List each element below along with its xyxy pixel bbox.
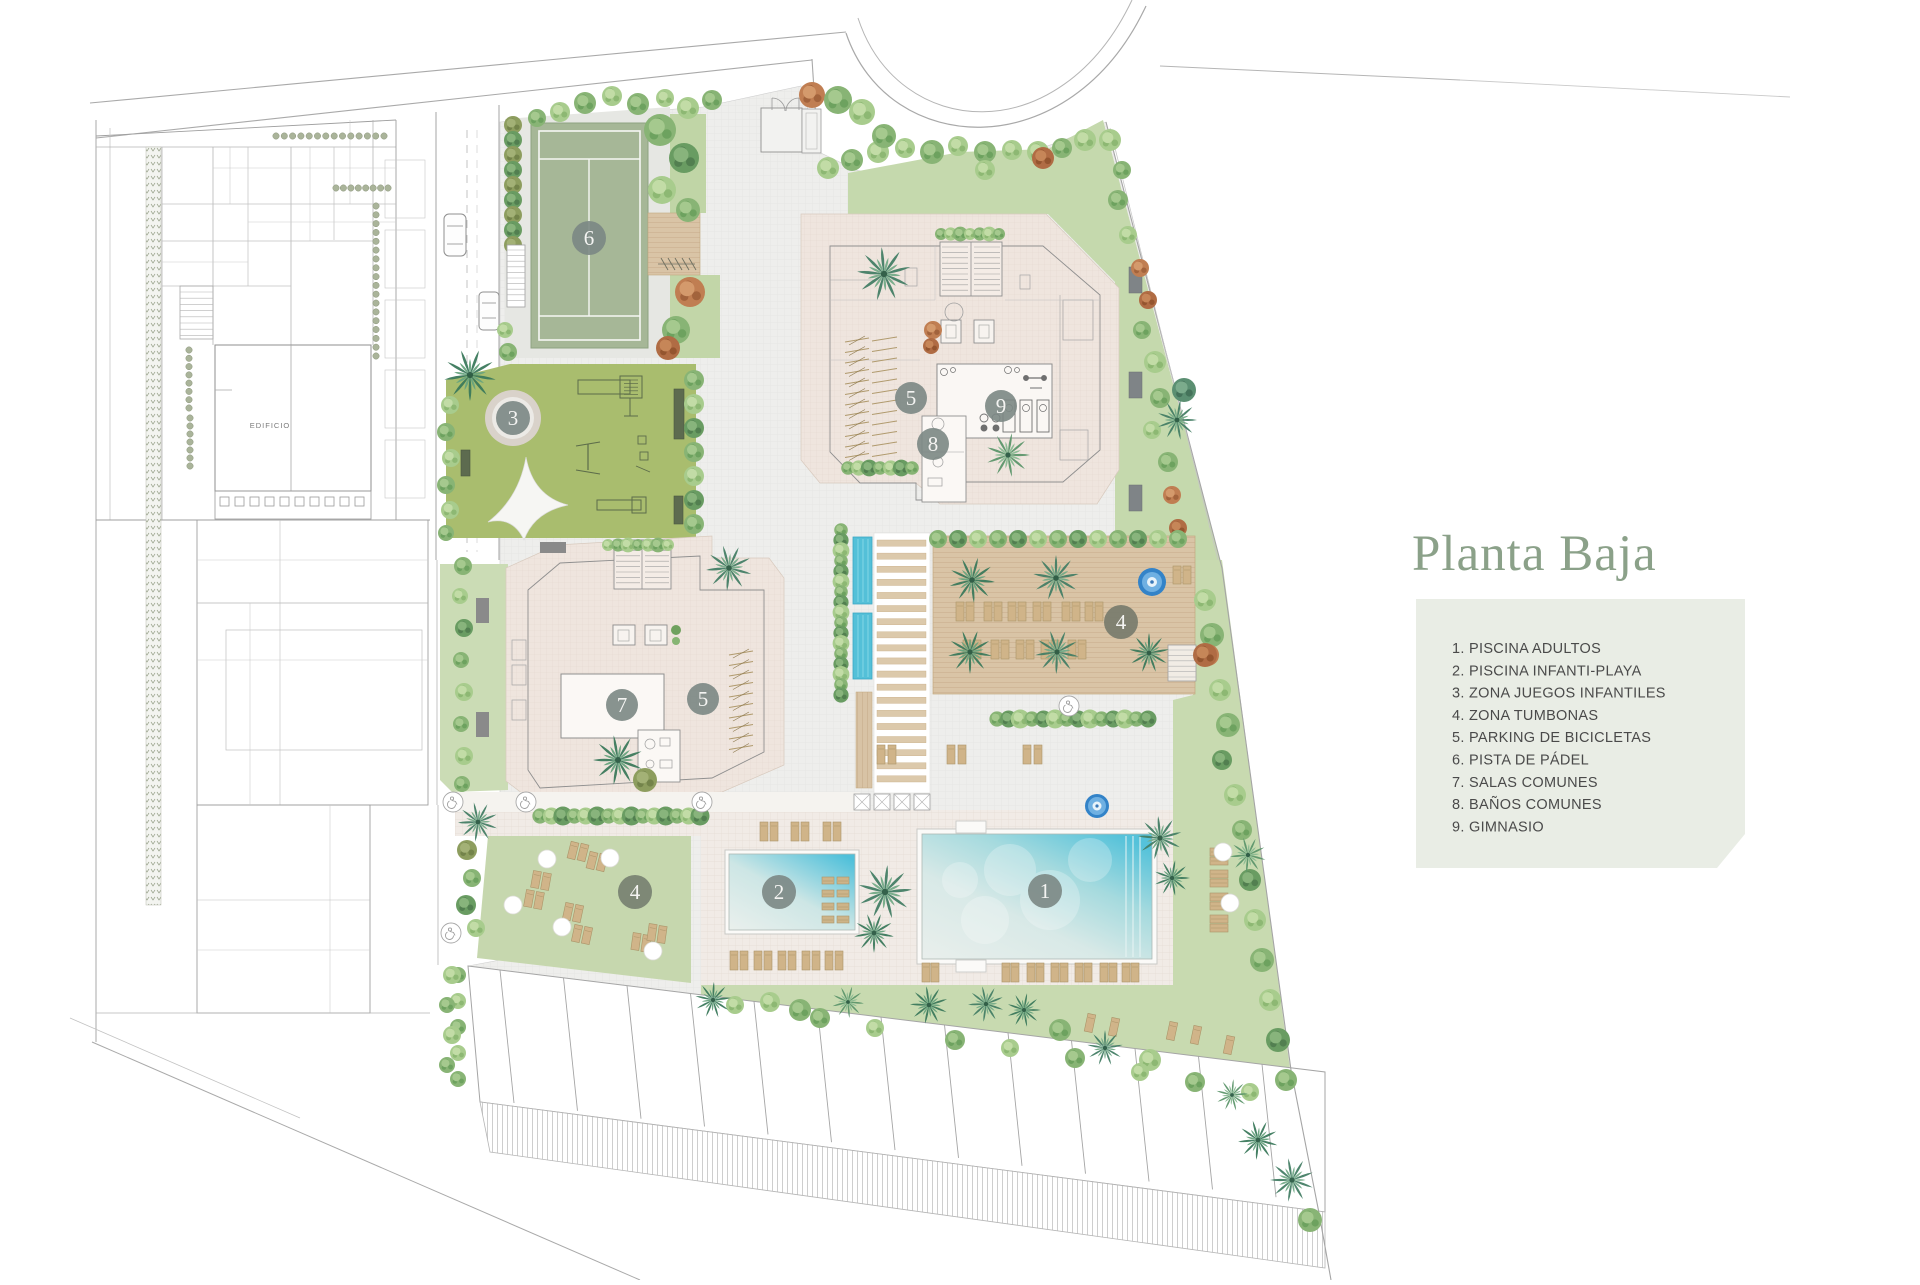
svg-text:7. SALAS COMUNES: 7. SALAS COMUNES [1452, 775, 1598, 791]
svg-text:5: 5 [906, 386, 917, 410]
svg-text:3: 3 [508, 406, 519, 430]
svg-text:4: 4 [630, 880, 641, 904]
svg-text:6: 6 [584, 226, 595, 250]
svg-text:5. PARKING DE BICICLETAS: 5. PARKING DE BICICLETAS [1452, 730, 1651, 746]
svg-text:1: 1 [1040, 879, 1051, 903]
svg-text:9. GIMNASIO: 9. GIMNASIO [1452, 819, 1544, 835]
svg-text:EDIFICIO: EDIFICIO [250, 421, 291, 430]
svg-text:2. PISCINA INFANTI-PLAYA: 2. PISCINA INFANTI-PLAYA [1452, 663, 1642, 679]
svg-text:7: 7 [617, 693, 628, 717]
svg-text:2: 2 [774, 880, 785, 904]
svg-text:Planta Baja: Planta Baja [1412, 526, 1657, 582]
svg-text:3. ZONA JUEGOS INFANTILES: 3. ZONA JUEGOS INFANTILES [1452, 686, 1666, 702]
svg-text:8: 8 [928, 432, 939, 456]
svg-text:4. ZONA TUMBONAS: 4. ZONA TUMBONAS [1452, 708, 1598, 724]
svg-text:4: 4 [1116, 610, 1127, 634]
svg-text:5: 5 [698, 687, 709, 711]
svg-text:1. PISCINA ADULTOS: 1. PISCINA ADULTOS [1452, 641, 1601, 657]
svg-text:9: 9 [996, 394, 1007, 418]
svg-text:6. PISTA DE PÁDEL: 6. PISTA DE PÁDEL [1452, 752, 1589, 769]
svg-text:8. BAÑOS COMUNES: 8. BAÑOS COMUNES [1452, 796, 1602, 813]
